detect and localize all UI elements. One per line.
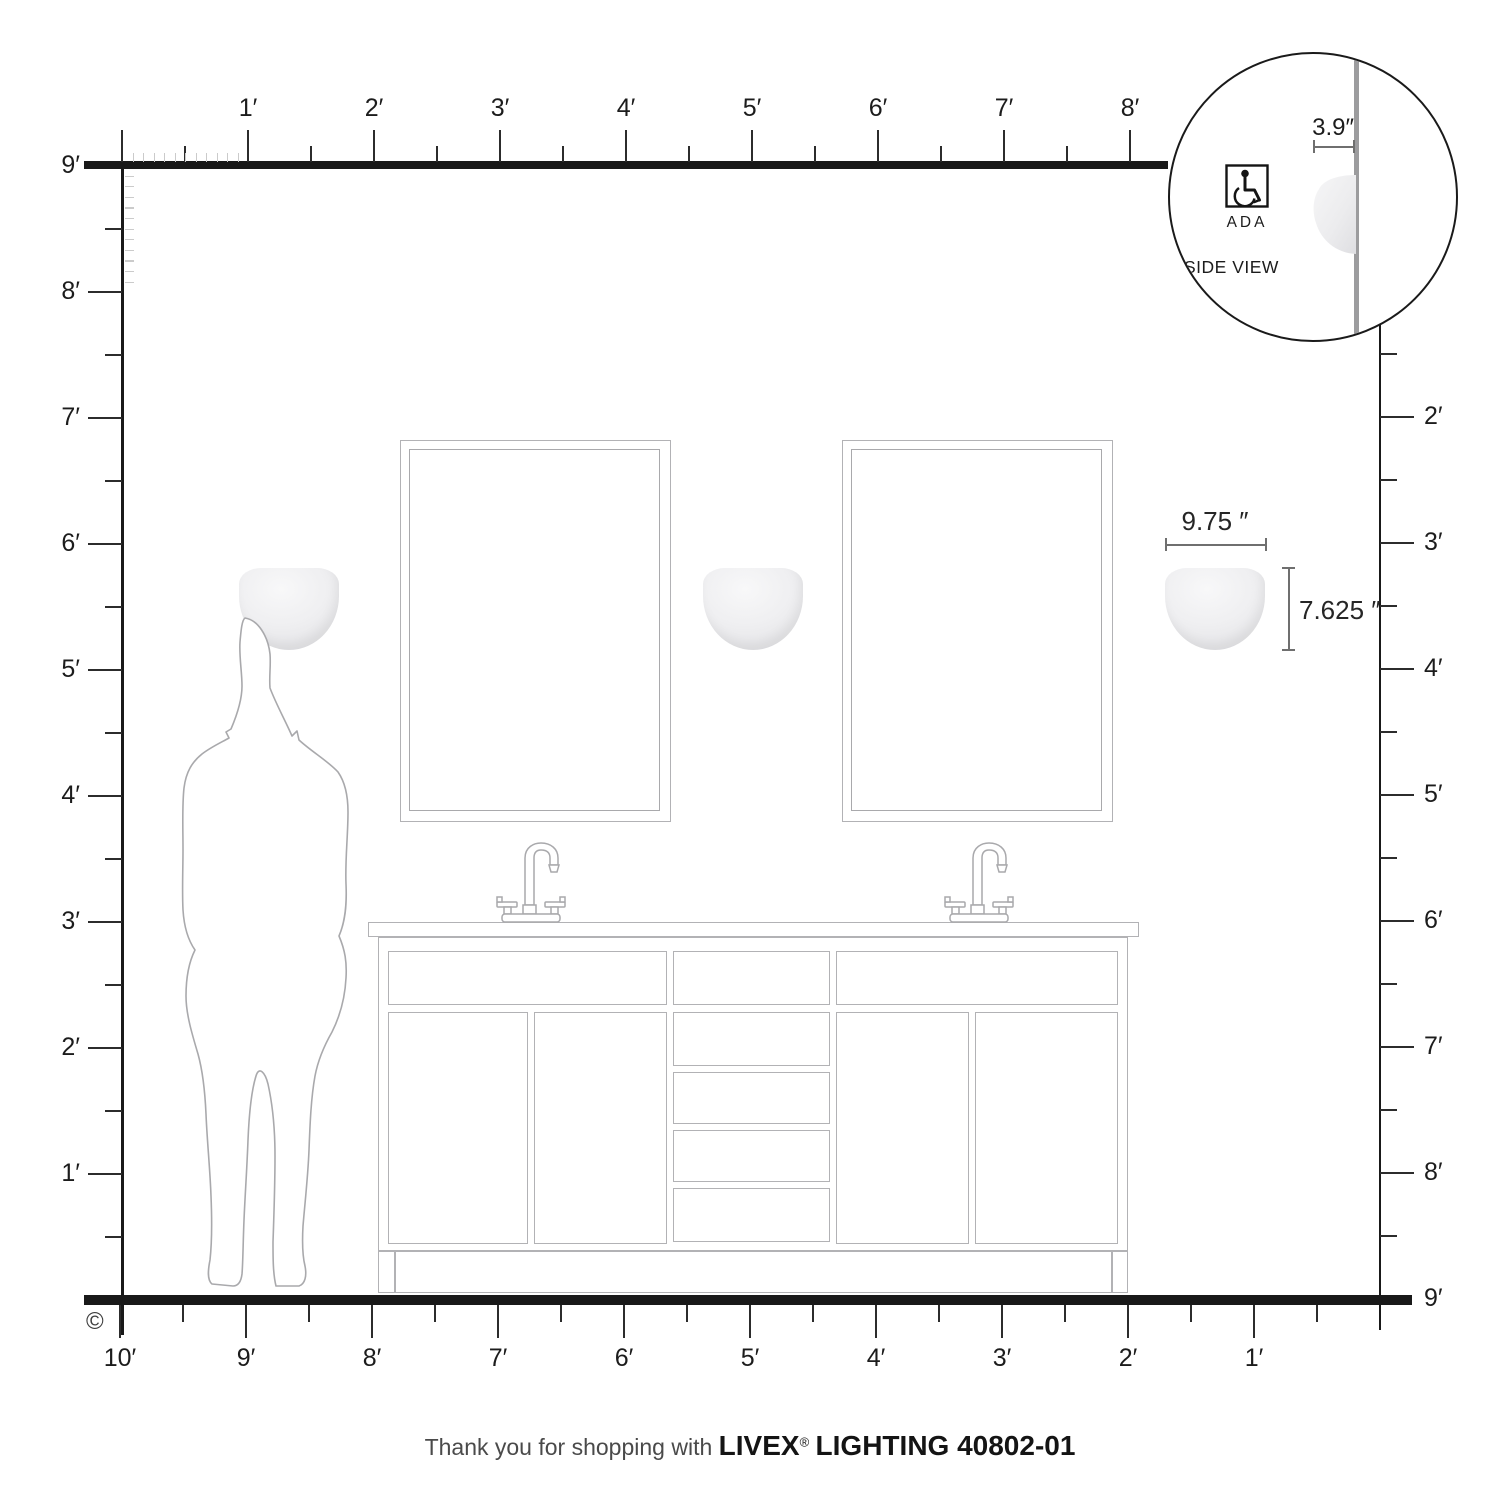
left-ruler-label: 9′ [38, 153, 80, 178]
sconce-dimensioned [1165, 568, 1265, 650]
mirror-left [400, 440, 671, 822]
right-half-tick [1380, 1109, 1397, 1111]
vanity-door-1 [388, 1012, 528, 1244]
top-ruler-label: 8′ [1105, 96, 1155, 121]
vanity-drawer-3 [673, 1130, 830, 1182]
bottom-half-tick [1064, 1305, 1066, 1322]
height-dimension-tick-bottom [1282, 649, 1295, 651]
top-ruler-label: 6′ [853, 96, 903, 121]
sconce-side-view [1311, 172, 1356, 256]
top-half-tick [436, 146, 438, 162]
top-half-tick [1066, 146, 1068, 162]
top-ruler-label: 7′ [979, 96, 1029, 121]
right-half-tick [1380, 983, 1397, 985]
vanity-leg-line-right [1111, 1251, 1113, 1293]
width-dimension-label: 9.75 ″ [1140, 508, 1290, 534]
registered-mark: ® [800, 1434, 810, 1449]
bottom-foot-tick [497, 1305, 500, 1338]
top-inch-tick [217, 153, 218, 162]
left-ruler-label: 8′ [38, 279, 80, 304]
left-foot-tick [88, 1173, 122, 1176]
left-half-tick [105, 480, 122, 482]
bottom-half-tick [308, 1305, 310, 1322]
bottom-ruler-label: 2′ [1098, 1346, 1158, 1371]
top-ruler-label: 3′ [475, 96, 525, 121]
top-inch-tick [185, 153, 186, 162]
height-dimension-label: 7.625 ″ [1299, 597, 1381, 623]
right-half-tick [1380, 1235, 1397, 1237]
left-foot-tick [88, 1047, 122, 1050]
left-inch-tick [125, 271, 134, 272]
top-foot-tick [499, 130, 502, 162]
bottom-ruler-label: 7′ [468, 1346, 528, 1371]
top-foot-tick [121, 130, 124, 162]
right-ruler-label: 6′ [1424, 908, 1474, 933]
mirror-right [842, 440, 1113, 822]
bottom-half-tick [182, 1305, 184, 1322]
bottom-half-tick [1190, 1305, 1192, 1322]
right-foot-tick [1380, 416, 1414, 419]
height-dimension-tick-top [1282, 567, 1295, 569]
top-ruler-label: 1′ [223, 96, 273, 121]
footer-model: LIGHTING 40802-01 [816, 1430, 1076, 1461]
right-ruler-label: 9′ [1424, 1286, 1474, 1311]
vanity-false-front-right [836, 951, 1118, 1005]
vanity-false-front-left [388, 951, 667, 1005]
sconce-center [703, 568, 803, 650]
right-foot-tick [1380, 1046, 1414, 1049]
top-foot-tick [625, 130, 628, 162]
right-ruler-label: 7′ [1424, 1034, 1474, 1059]
copyright-mark: © [86, 1310, 104, 1334]
vanity-drawer-1 [673, 1012, 830, 1066]
right-half-tick [1380, 353, 1397, 355]
right-ruler-label: 5′ [1424, 782, 1474, 807]
right-half-tick [1380, 605, 1397, 607]
left-ruler-label: 2′ [38, 1035, 80, 1060]
left-foot-tick [88, 543, 122, 546]
left-half-tick [105, 354, 122, 356]
left-foot-tick [88, 291, 122, 294]
faucet-left [496, 842, 566, 924]
bottom-ruler-label: 9′ [216, 1346, 276, 1371]
top-ruler-label: 4′ [601, 96, 651, 121]
top-foot-tick [751, 130, 754, 162]
vanity-base-band [378, 1251, 1128, 1293]
width-dimension-tick-left [1165, 538, 1167, 551]
bottom-half-tick [938, 1305, 940, 1322]
vanity-drawer-2 [673, 1072, 830, 1124]
left-foot-tick [88, 417, 122, 420]
right-foot-tick [1380, 920, 1414, 923]
top-ruler-label: 5′ [727, 96, 777, 121]
bottom-ruler-label: 5′ [720, 1346, 780, 1371]
top-half-tick [562, 146, 564, 162]
footer-text: Thank you for shopping with LIVEX® LIGHT… [0, 1430, 1500, 1462]
bottom-half-tick [434, 1305, 436, 1322]
left-inch-tick [125, 239, 134, 240]
scale-figure-woman [150, 600, 360, 1300]
bottom-ruler-label: 1′ [1224, 1346, 1284, 1371]
bottom-ruler-label: 3′ [972, 1346, 1032, 1371]
top-inch-tick [164, 153, 165, 162]
top-inch-tick [133, 153, 134, 162]
top-inch-tick [143, 153, 144, 162]
top-ruler-label: 2′ [349, 96, 399, 121]
top-foot-tick [877, 130, 880, 162]
top-inch-tick [154, 153, 155, 162]
mirror-left-inner-frame [409, 449, 660, 811]
left-ruler-label: 5′ [38, 657, 80, 682]
top-inch-tick [238, 153, 239, 162]
left-ruler-label: 6′ [38, 531, 80, 556]
bottom-foot-tick [749, 1305, 752, 1338]
left-foot-tick [88, 795, 122, 798]
side-view-inset: 3.9″ ADA SIDE VIEW [1168, 52, 1458, 342]
left-inch-tick [125, 218, 134, 219]
vanity-door-2 [534, 1012, 667, 1244]
bottom-half-tick [812, 1305, 814, 1322]
right-half-tick [1380, 731, 1397, 733]
left-inch-tick [125, 207, 134, 208]
left-inch-tick [125, 282, 134, 283]
left-ruler-label: 3′ [38, 909, 80, 934]
top-half-tick [940, 146, 942, 162]
faucet-handle-nub-right [560, 897, 565, 902]
left-inch-tick [125, 176, 134, 177]
bottom-ruler-label: 4′ [846, 1346, 906, 1371]
left-ruler-label: 1′ [38, 1161, 80, 1186]
depth-dimension-label: 3.9″ [1266, 114, 1354, 142]
top-ruler-line [84, 161, 1168, 169]
right-ruler-label: 2′ [1424, 404, 1474, 429]
left-inch-tick [125, 229, 134, 230]
bottom-ruler-label: 6′ [594, 1346, 654, 1371]
ada-icon [1225, 164, 1269, 210]
top-half-tick [310, 146, 312, 162]
faucet-deck [502, 914, 560, 922]
left-half-tick [105, 984, 122, 986]
right-ruler-label: 8′ [1424, 1160, 1474, 1185]
vanity-door-4 [975, 1012, 1118, 1244]
depth-dimension-tick-right [1353, 140, 1355, 153]
left-half-tick [105, 1236, 122, 1238]
bottom-ruler-label: 8′ [342, 1346, 402, 1371]
bottom-ruler-label: 10′ [90, 1346, 150, 1371]
top-inch-tick [227, 153, 228, 162]
left-inch-tick [125, 186, 134, 187]
left-inch-tick [125, 260, 134, 261]
vanity-door-3 [836, 1012, 969, 1244]
left-half-tick [105, 606, 122, 608]
right-half-tick [1380, 857, 1397, 859]
bottom-foot-tick [1253, 1305, 1256, 1338]
top-inch-tick [196, 153, 197, 162]
vanity-false-front-middle [673, 951, 830, 1005]
depth-dimension-tick-left [1313, 140, 1315, 153]
mirror-right-inner-frame [851, 449, 1102, 811]
bottom-half-tick [560, 1305, 562, 1322]
top-foot-tick [247, 130, 250, 162]
footer-prefix: Thank you for shopping with [425, 1434, 713, 1460]
bottom-foot-tick [1127, 1305, 1130, 1338]
right-foot-tick [1380, 542, 1414, 545]
vanity-countertop [368, 922, 1139, 937]
right-ruler-label: 3′ [1424, 530, 1474, 555]
faucet-handle-nub-left [497, 897, 502, 902]
faucet-joint [523, 905, 536, 914]
faucet-handle-stem-left [504, 907, 511, 914]
side-view-label: SIDE VIEW [1184, 257, 1304, 278]
bottom-foot-tick [371, 1305, 374, 1338]
left-half-tick [105, 228, 122, 230]
top-foot-tick [1003, 130, 1006, 162]
top-inch-tick [175, 153, 176, 162]
left-inch-tick [125, 197, 134, 198]
bottom-half-tick [686, 1305, 688, 1322]
bottom-foot-tick [1001, 1305, 1004, 1338]
bottom-foot-tick [623, 1305, 626, 1338]
right-ruler-label: 4′ [1424, 656, 1474, 681]
faucet-handle-stem-right [551, 907, 558, 914]
right-half-tick [1380, 479, 1397, 481]
top-foot-tick [373, 130, 376, 162]
left-foot-tick [88, 921, 122, 924]
top-half-tick [688, 146, 690, 162]
height-dimension-line [1288, 568, 1290, 650]
right-wall-line [1379, 320, 1382, 1330]
size-chart-canvas: 1′2′3′4′5′6′7′8′9′8′7′6′5′4′3′2′1′2′3′4′… [0, 0, 1500, 1500]
bottom-foot-tick [119, 1305, 122, 1338]
bottom-foot-tick [875, 1305, 878, 1338]
right-foot-tick [1380, 1172, 1414, 1175]
left-wall-line [121, 161, 124, 1335]
faucet-spout-tip [549, 865, 559, 872]
top-half-tick [814, 146, 816, 162]
depth-dimension-line [1314, 146, 1355, 148]
left-foot-tick [88, 669, 122, 672]
width-dimension-tick-right [1265, 538, 1267, 551]
vanity-drawer-4 [673, 1188, 830, 1242]
bottom-foot-tick [245, 1305, 248, 1338]
left-ruler-label: 4′ [38, 783, 80, 808]
footer-brand: LIVEX [719, 1430, 800, 1461]
right-foot-tick [1380, 794, 1414, 797]
faucet-right [944, 842, 1014, 924]
left-half-tick [105, 732, 122, 734]
right-foot-tick [1380, 668, 1414, 671]
width-dimension-line [1166, 544, 1266, 546]
top-foot-tick [1129, 130, 1132, 162]
vanity-leg-line-left [394, 1251, 396, 1293]
left-half-tick [105, 1110, 122, 1112]
bottom-half-tick [1316, 1305, 1318, 1322]
faucet-gooseneck [525, 843, 558, 905]
left-inch-tick [125, 250, 134, 251]
ada-label: ADA [1216, 214, 1278, 232]
top-inch-tick [206, 153, 207, 162]
left-ruler-label: 7′ [38, 405, 80, 430]
left-half-tick [105, 858, 122, 860]
